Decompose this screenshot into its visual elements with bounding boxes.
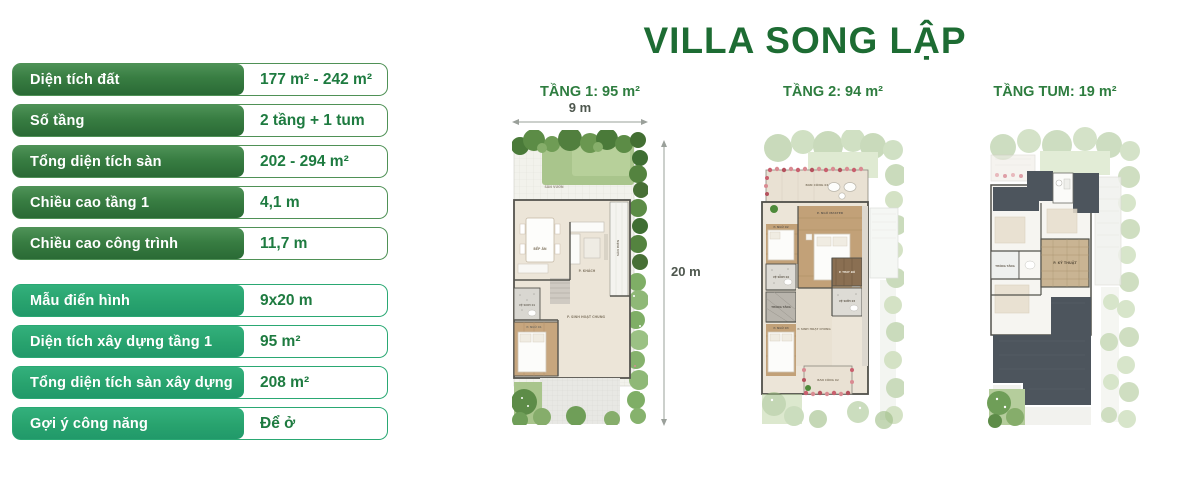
spec-group-model: Mẫu điển hình 9x20 m Diện tích xây dựng … xyxy=(12,284,388,440)
villa-infographic-page: { "title": "VILLA SONG LẬP", "colors": {… xyxy=(0,0,1200,500)
plan1-house xyxy=(514,200,630,378)
floor-plan-1: SÂN VƯỜN SÂN HIÊN BẾP ĂN P. KHÁCH P. SIN… xyxy=(512,130,648,425)
room-label: P. KHÁCH xyxy=(579,268,596,273)
spec-label: Tổng diện tích sàn xây dựng xyxy=(13,367,244,398)
spec-value: 177 m² - 242 m² xyxy=(244,64,387,95)
table-row: Diện tích đất 177 m² - 242 m² xyxy=(12,63,388,96)
room-label: P. NGỦ 02 xyxy=(773,224,788,229)
spec-label: Diện tích đất xyxy=(13,64,244,95)
room-label: P. SINH HOẠT CHUNG xyxy=(567,315,605,319)
arrowhead-left-icon xyxy=(512,119,519,125)
spec-label: Mẫu điển hình xyxy=(13,285,244,316)
floor-plan-2: BAN CÔNG 01 P. NGỦ MASTER P. NGỦ 02 VỆ S… xyxy=(758,130,904,430)
width-dimension-indicator: 9 m xyxy=(506,99,654,127)
table-row: Tổng diện tích sàn xây dựng 208 m² xyxy=(12,366,388,399)
arrowhead-up-icon xyxy=(661,140,667,147)
spec-label: Diện tích xây dựng tầng 1 xyxy=(13,326,244,357)
room-label: P. NGỦ MASTER xyxy=(817,210,844,215)
table-row: Chiều cao công trình 11,7 m xyxy=(12,227,388,260)
room-label: BAN CÔNG 01 xyxy=(805,182,828,187)
plan2-faded-right-garden xyxy=(870,164,904,424)
plan3-bottom-bushes xyxy=(987,389,1025,428)
arrowhead-down-icon xyxy=(661,419,667,426)
spec-group-building: Diện tích đất 177 m² - 242 m² Số tầng 2 … xyxy=(12,63,388,260)
room-label: P. NGỦ 01 xyxy=(526,324,541,329)
plan-3-label: TẦNG TUM: 19 m² xyxy=(970,84,1140,100)
spec-label: Chiều cao công trình xyxy=(13,228,244,259)
spec-value: 202 - 294 m² xyxy=(244,146,387,177)
room-label: SÂN HIÊN xyxy=(615,239,620,256)
spec-label: Gợi ý công năng xyxy=(13,408,244,439)
spec-value: 95 m² xyxy=(244,326,387,357)
spec-value: 9x20 m xyxy=(244,285,387,316)
arrowhead-right-icon xyxy=(641,119,648,125)
spec-label: Số tầng xyxy=(13,105,244,136)
plan-2-label: TẦNG 2: 94 m² xyxy=(748,84,918,100)
room-label: BAN CÔNG 02 xyxy=(817,377,839,382)
width-dimension-text: 9 m xyxy=(569,100,591,115)
spec-table: Diện tích đất 177 m² - 242 m² Số tầng 2 … xyxy=(12,63,388,440)
spec-label: Chiều cao tầng 1 xyxy=(13,187,244,218)
depth-dimension-text: 20 m xyxy=(671,264,701,279)
depth-dimension-indicator: 20 m xyxy=(654,136,702,430)
room-label: P. KỸ THUẬT xyxy=(1053,260,1077,265)
table-row: Gợi ý công năng Để ở xyxy=(12,407,388,440)
table-row: Diện tích xây dựng tầng 1 95 m² xyxy=(12,325,388,358)
spec-value: 11,7 m xyxy=(244,228,387,259)
spec-value: Để ở xyxy=(244,408,387,439)
spec-value: 2 tầng + 1 tum xyxy=(244,105,387,136)
spec-label: Tổng diện tích sàn xyxy=(13,146,244,177)
plan2-faded-bottom-garden xyxy=(762,392,893,429)
table-row: Tổng diện tích sàn 202 - 294 m² xyxy=(12,145,388,178)
spec-value: 4,1 m xyxy=(244,187,387,218)
room-label: P. SINH HOẠT CHUNG xyxy=(797,327,831,331)
room-label: P. NGỦ 03 xyxy=(773,325,788,330)
table-row: Mẫu điển hình 9x20 m xyxy=(12,284,388,317)
room-label: SÂN VƯỜN xyxy=(544,184,563,189)
floor-plan-3: THÔNG TẦNG P. KỸ THUẬT xyxy=(985,127,1142,432)
table-row: Số tầng 2 tầng + 1 tum xyxy=(12,104,388,137)
plan2-house xyxy=(762,202,868,394)
spec-value: 208 m² xyxy=(244,367,387,398)
table-row: Chiều cao tầng 1 4,1 m xyxy=(12,186,388,219)
plan-1-label: TẦNG 1: 95 m² xyxy=(505,84,675,100)
page-title: VILLA SONG LẬP xyxy=(460,20,1150,62)
